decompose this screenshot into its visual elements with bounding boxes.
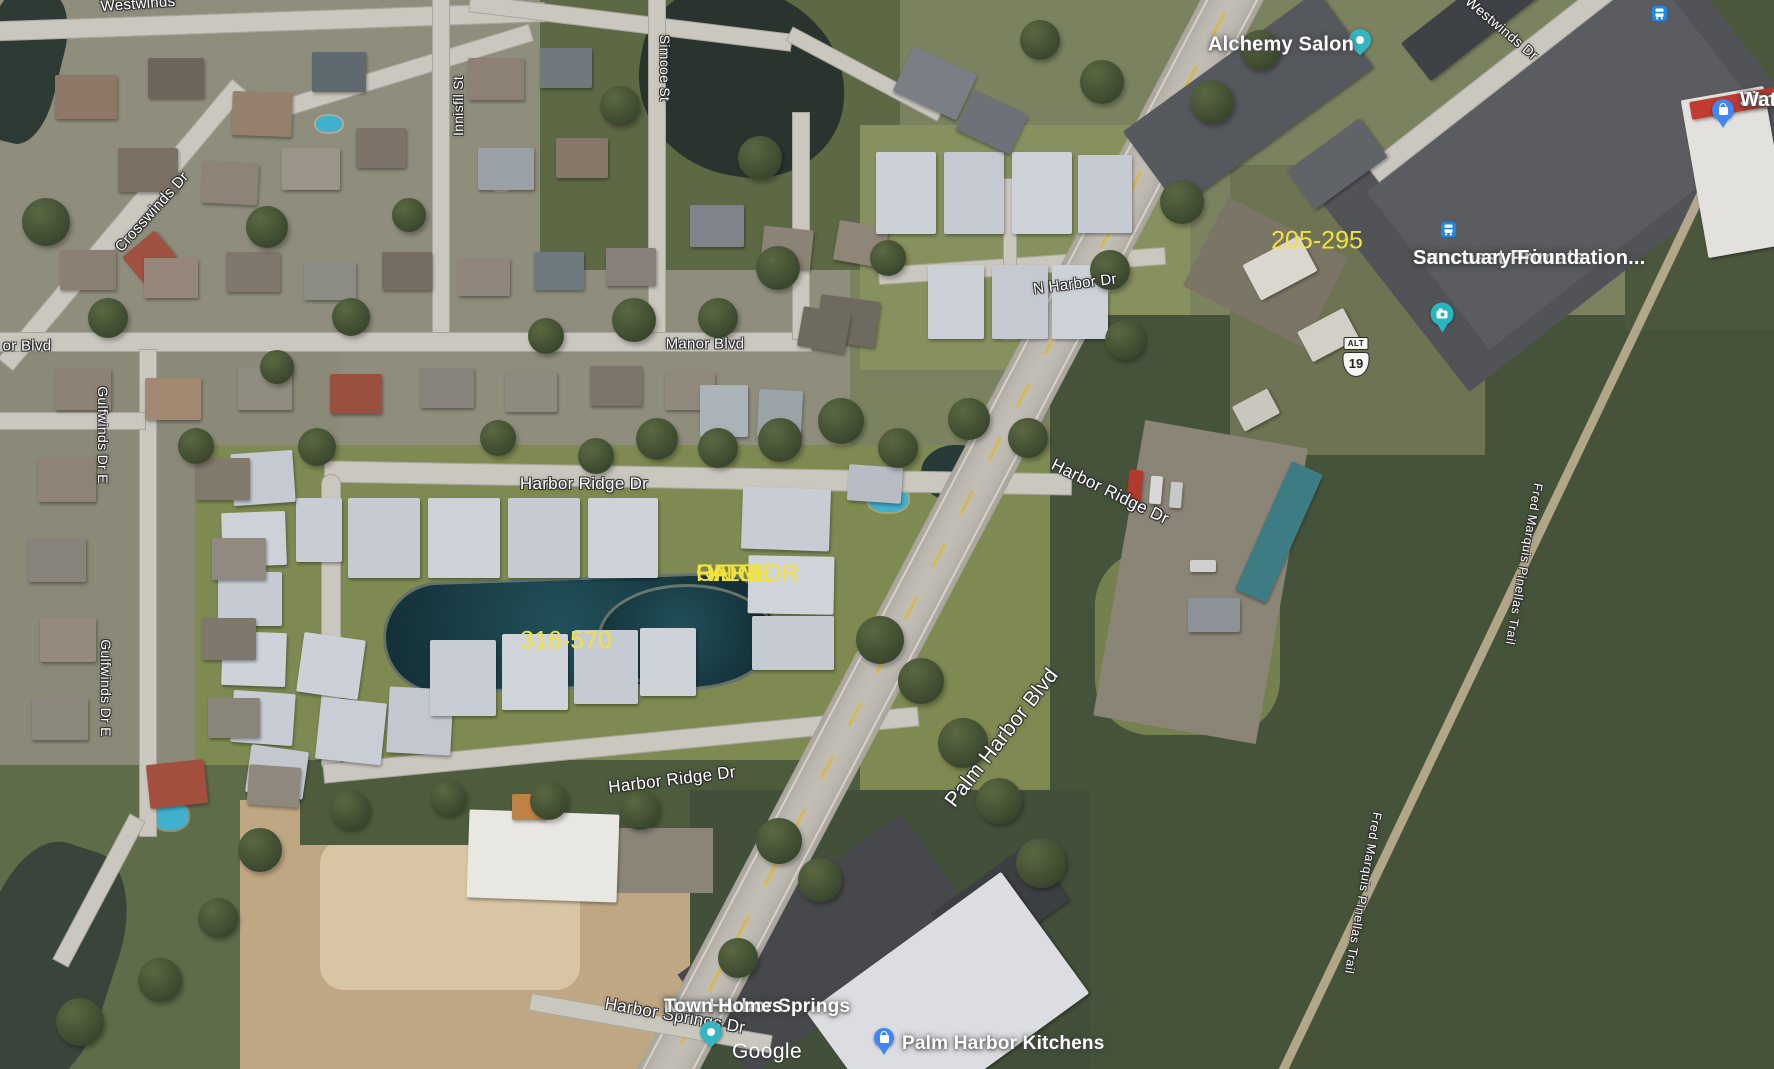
building: [540, 48, 592, 88]
camera-icon: [1437, 310, 1448, 318]
building: [208, 698, 260, 738]
building: [247, 764, 302, 808]
building: [1169, 482, 1183, 509]
tree: [298, 428, 336, 466]
building: [212, 538, 266, 580]
building: [556, 138, 608, 178]
tree: [1190, 80, 1234, 124]
building: [797, 306, 851, 354]
building: [40, 618, 96, 662]
road: [432, 0, 450, 352]
building: [420, 368, 474, 408]
tree: [718, 938, 758, 978]
tree: [600, 86, 640, 126]
route-shield-number: 19: [1343, 352, 1370, 377]
tree: [260, 350, 294, 384]
building: [226, 252, 280, 292]
building: [467, 809, 620, 902]
tree: [238, 828, 282, 872]
tree: [636, 418, 678, 460]
tree: [756, 246, 800, 290]
shopping-bag-icon: [880, 1035, 889, 1043]
building: [508, 498, 580, 578]
building: [60, 250, 116, 290]
building: [534, 252, 584, 290]
google-watermark: Google: [732, 1040, 802, 1064]
tree: [976, 778, 1022, 824]
building: [468, 58, 524, 100]
tree: [530, 782, 568, 820]
building: [478, 148, 534, 190]
tree: [392, 198, 426, 232]
tree: [480, 420, 516, 456]
street-label-simcoe-st: Simcoe St: [657, 35, 673, 102]
building: [690, 205, 744, 247]
tree: [528, 318, 564, 354]
tree: [738, 136, 782, 180]
building: [382, 252, 432, 290]
building: [752, 616, 834, 670]
building: [992, 265, 1048, 339]
building: [312, 52, 366, 92]
building: [356, 128, 406, 168]
building: [458, 258, 510, 296]
road: [0, 412, 146, 430]
street-label-gulfwinds-dr-e-1: Gulfwinds Dr E: [95, 386, 111, 484]
tree: [698, 428, 738, 468]
building: [148, 58, 204, 98]
tree: [330, 790, 370, 830]
route-shield-alt-19: ALT 19: [1343, 333, 1370, 377]
building: [201, 161, 259, 206]
street-label-or-blvd-cut: or Blvd: [3, 338, 52, 355]
tree: [332, 298, 370, 336]
tree: [856, 616, 904, 664]
building: [146, 759, 208, 809]
tree: [1016, 838, 1066, 888]
tree: [756, 818, 802, 864]
building: [1012, 152, 1072, 234]
building: [1078, 155, 1132, 233]
building: [55, 75, 117, 119]
building: [588, 498, 658, 578]
tree: [1020, 20, 1060, 60]
tree: [430, 780, 466, 816]
building: [28, 538, 86, 582]
tree: [22, 198, 70, 246]
poi-label-alchemy-salon[interactable]: Alchemy Salon: [1208, 34, 1354, 57]
street-label-gulfwinds-dr-e-2: Gulfwinds Dr E: [98, 639, 114, 737]
poi-line-2: Wat: [1740, 89, 1774, 112]
tree: [620, 790, 660, 830]
tree: [948, 398, 990, 440]
route-shield-banner: ALT: [1344, 337, 1368, 350]
tree: [246, 206, 288, 248]
tree: [1105, 320, 1145, 360]
tree: [612, 298, 656, 342]
street-label-innisfil-st: Innisfil St: [450, 76, 466, 136]
building: [430, 640, 496, 716]
tree: [758, 418, 802, 462]
building: [330, 374, 382, 414]
building: [296, 498, 342, 562]
tree: [1080, 60, 1124, 104]
building: [231, 91, 292, 137]
tree: [198, 898, 238, 938]
shopping-pin-icon-kitchens[interactable]: [874, 1028, 894, 1048]
tree: [578, 438, 614, 474]
tree: [798, 858, 842, 902]
tree: [878, 428, 918, 468]
building: [304, 262, 356, 300]
building: [505, 372, 557, 412]
tree: [870, 240, 906, 276]
poi-label-palm-harbor-kitchens[interactable]: Palm Harbor Kitchens: [902, 1032, 1105, 1055]
building: [944, 152, 1004, 234]
building: [282, 148, 340, 190]
building: [144, 258, 198, 298]
tree: [1160, 180, 1204, 224]
satellite-map[interactable]: Westwinds Crosswinds Dr Innisfil St Simc…: [0, 0, 1774, 1069]
building: [296, 632, 366, 700]
building: [606, 248, 656, 286]
building: [741, 486, 831, 551]
shopping-bag-icon: [1719, 107, 1728, 115]
building: [202, 618, 256, 660]
building: [847, 464, 903, 504]
shopping-pin-icon-jim[interactable]: [1712, 99, 1734, 121]
unit-range-annotation-north: 205-295: [1271, 227, 1363, 256]
community-line-5: HARBOR: [696, 560, 799, 587]
building: [428, 498, 500, 578]
building: [1188, 598, 1240, 632]
building: [928, 265, 984, 339]
building: [876, 152, 936, 234]
street-label-harbor-ridge-dr-top: Harbor Ridge Dr: [520, 474, 648, 494]
tree: [1008, 418, 1048, 458]
building: [38, 458, 96, 502]
building: [32, 698, 88, 740]
tree: [898, 658, 944, 704]
unit-range-annotation-lake: 316-570: [520, 627, 612, 656]
building: [145, 378, 201, 420]
poi-line-2: Sanctuary Foundation...: [1413, 247, 1645, 270]
building: [196, 458, 250, 500]
poi-line-2: Town Homes: [664, 995, 783, 1018]
building: [590, 366, 642, 406]
satellite-imagery: [0, 0, 1774, 1069]
building: [1190, 560, 1216, 572]
building: [640, 628, 696, 696]
tree: [56, 998, 104, 1046]
tree: [138, 958, 182, 1002]
tree: [88, 298, 128, 338]
building: [348, 498, 420, 578]
camera-pin-icon-suncoast[interactable]: [1431, 303, 1454, 326]
street-label-manor-blvd: Manor Blvd: [666, 336, 745, 353]
tree: [698, 298, 738, 338]
tree: [818, 398, 864, 444]
building: [315, 697, 387, 766]
swimming-pool: [316, 116, 342, 132]
tree: [178, 428, 214, 464]
